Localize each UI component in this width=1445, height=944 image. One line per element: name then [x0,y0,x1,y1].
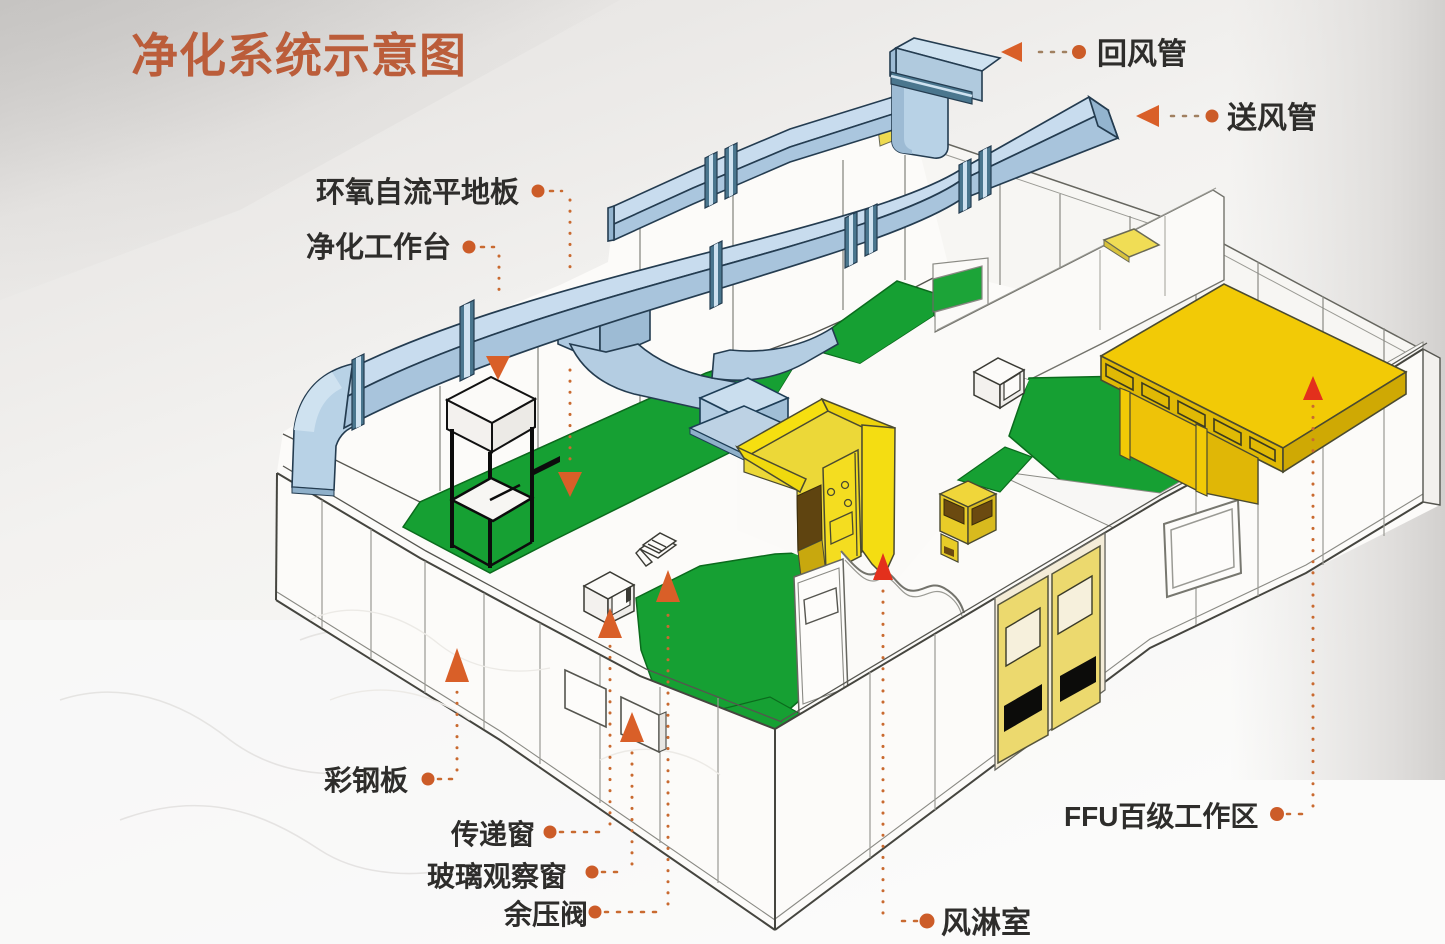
svg-text:回风管: 回风管 [1097,38,1187,71]
svg-text:余压阀: 余压阀 [503,898,588,930]
svg-text:净化工作台: 净化工作台 [306,230,451,264]
svg-text:环氧自流平地板: 环氧自流平地板 [316,176,520,209]
svg-text:送风管: 送风管 [1227,102,1317,135]
svg-text:净化系统示意图: 净化系统示意图 [131,29,467,82]
svg-text:FFU百级工作区: FFU百级工作区 [1064,801,1258,832]
svg-text:玻璃观察窗: 玻璃观察窗 [427,860,567,892]
svg-text:风淋室: 风淋室 [941,906,1031,940]
svg-text:传递窗: 传递窗 [450,818,535,850]
svg-text:彩钢板: 彩钢板 [324,765,408,796]
